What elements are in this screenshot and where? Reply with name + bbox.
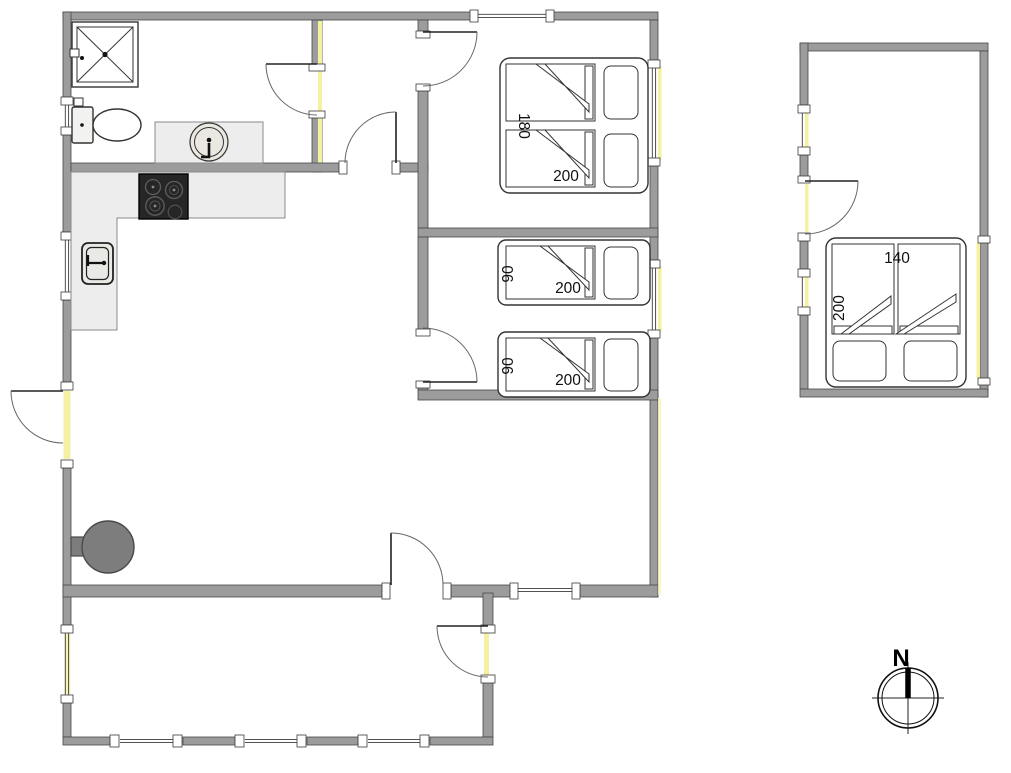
bedroom2-bed-b: 90 200 [498, 332, 650, 397]
washbasin-icon [155, 122, 263, 163]
bed-length-label: 200 [555, 372, 581, 389]
hall-glass-strip [318, 21, 322, 163]
bed-width-label: 140 [884, 250, 910, 267]
bed-length-label: 200 [555, 280, 581, 297]
floorplan-page: 180 200 90 200 90 200 [0, 0, 1011, 773]
pillow [604, 134, 638, 187]
bathroom [70, 22, 263, 163]
bed-width-label: 90 [500, 265, 517, 283]
cooktop-icon [139, 174, 188, 219]
pillow [604, 247, 638, 299]
wood-stove-icon [71, 521, 134, 573]
pillow [904, 341, 957, 381]
pillow [604, 66, 638, 119]
floorplan-svg: 180 200 90 200 90 200 [0, 0, 1011, 773]
bedroom2-bed-a: 90 200 [498, 240, 650, 305]
bed-width-label: 90 [500, 357, 517, 375]
annex-bed: 140 200 [826, 238, 966, 387]
shower-icon [70, 22, 138, 87]
bed-length-label: 200 [553, 168, 579, 185]
pillow [604, 339, 638, 391]
bedroom1-bed: 180 200 [500, 58, 648, 193]
kitchen [71, 172, 285, 330]
north-label: N [892, 645, 909, 672]
bed-length-label: 200 [831, 295, 848, 321]
pillow [833, 341, 886, 381]
bed-width-label: 180 [515, 113, 532, 139]
annex-door [798, 176, 858, 241]
compass-icon: N [872, 645, 944, 734]
living-room [71, 521, 134, 573]
refrigerator-icon [82, 243, 113, 284]
toilet-icon [72, 98, 141, 143]
annex: 140 200 [798, 43, 990, 397]
